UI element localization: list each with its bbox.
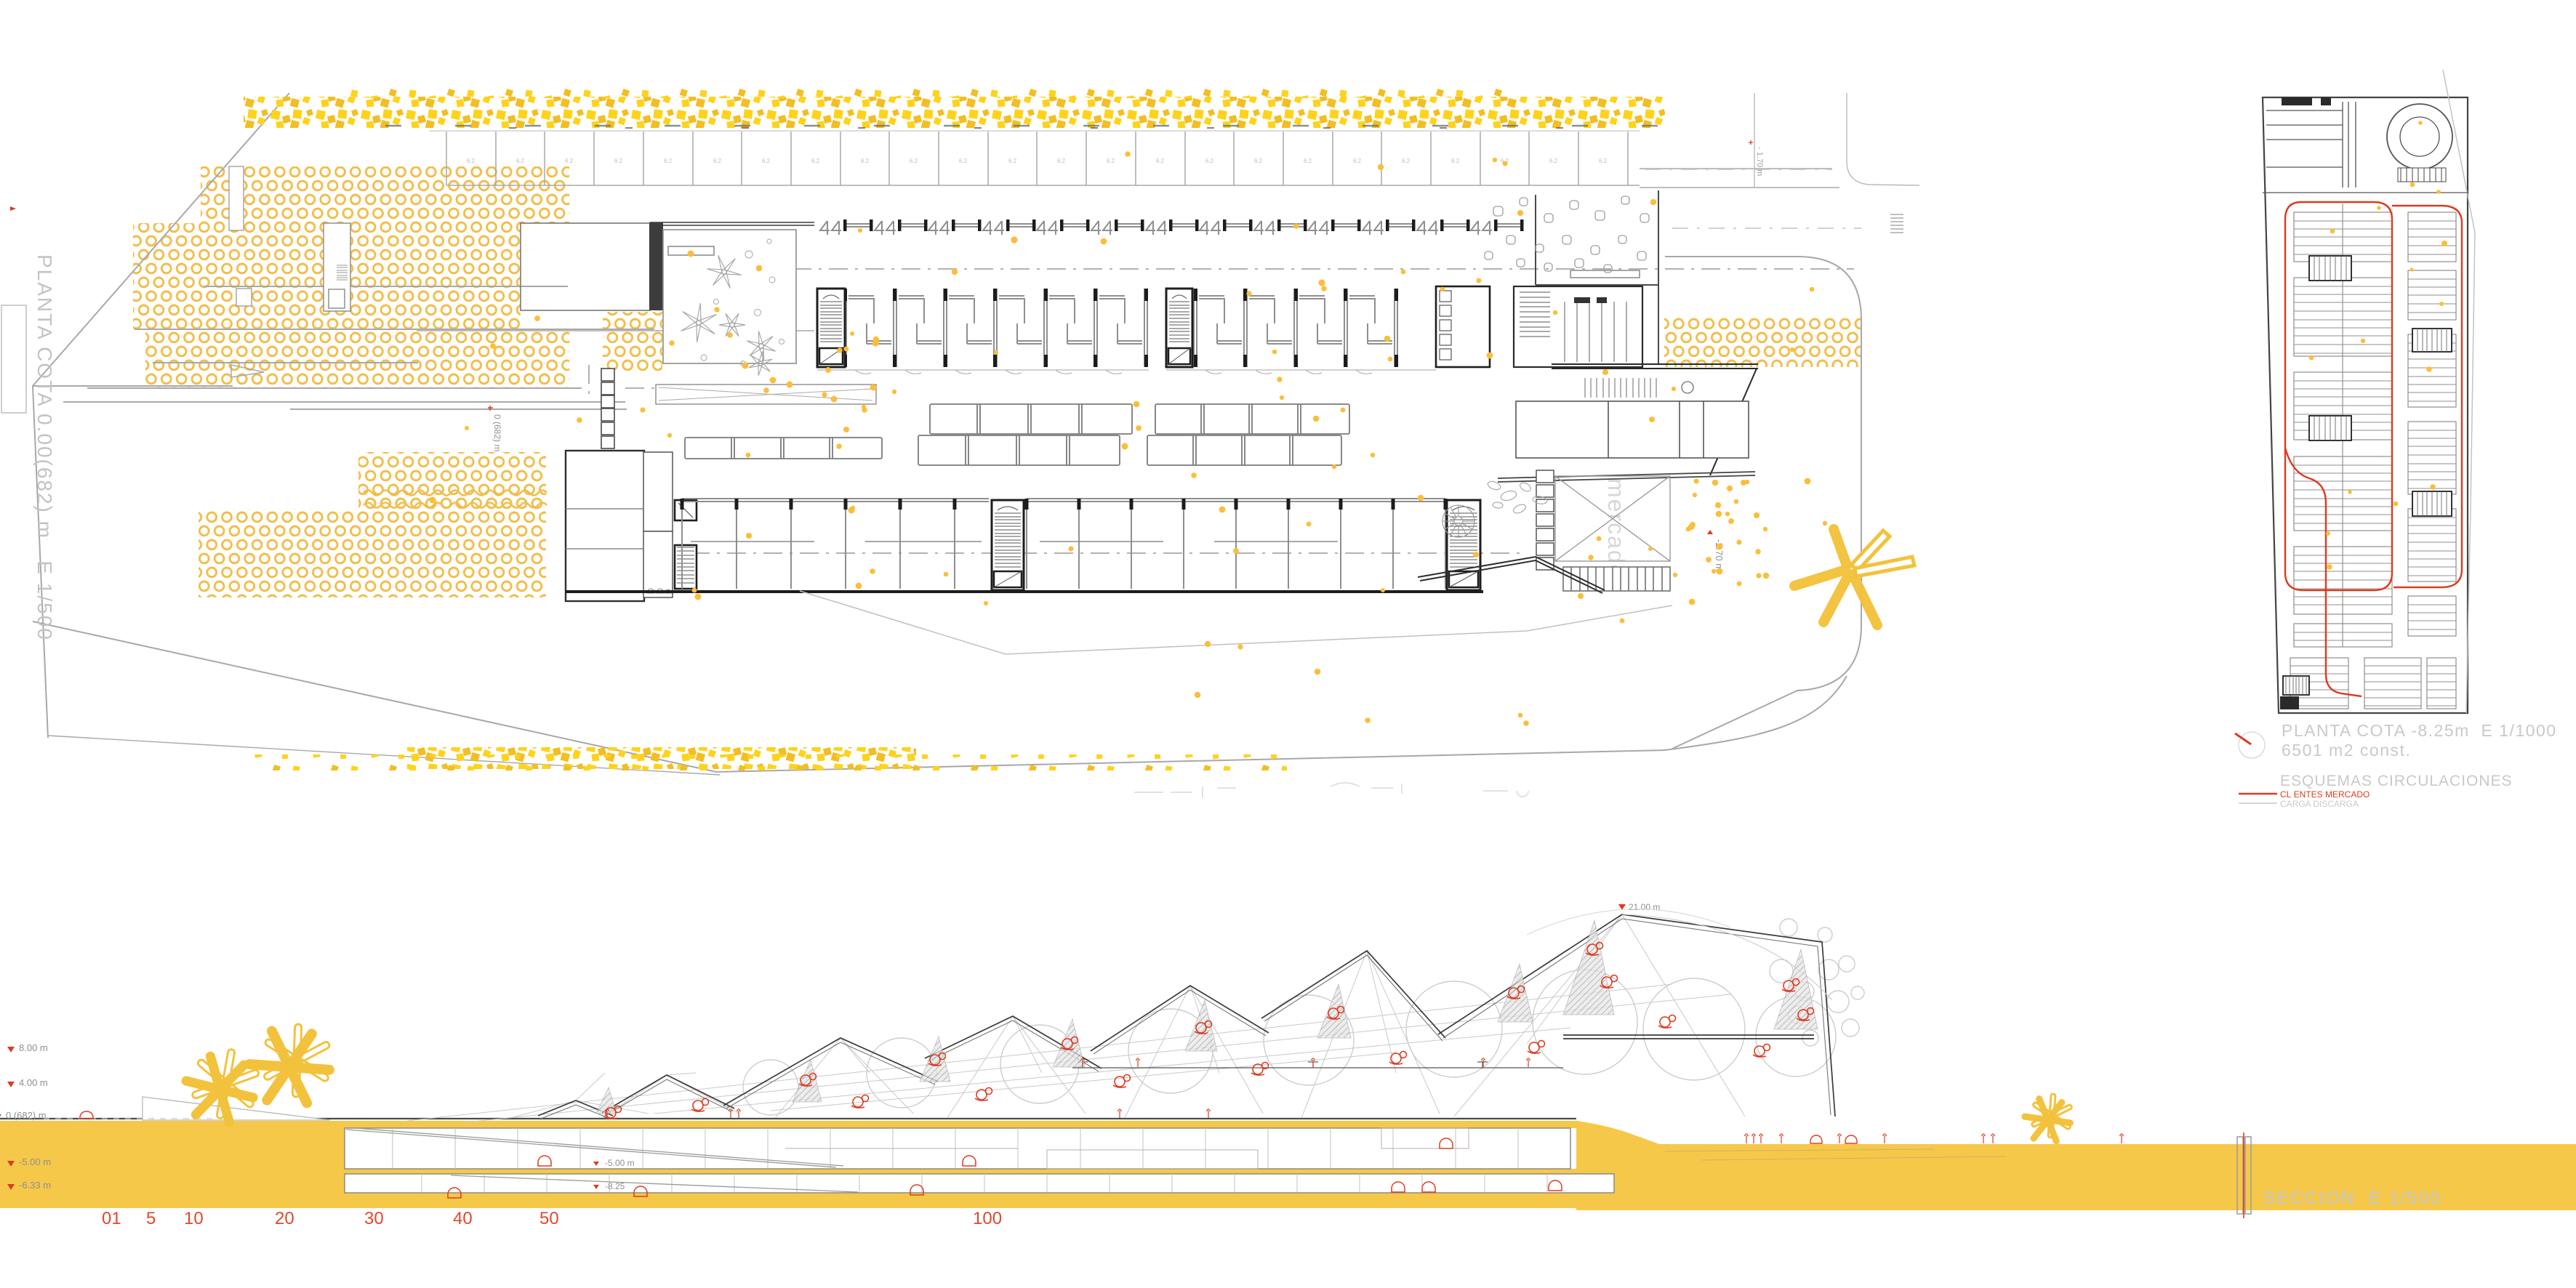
svg-text:20: 20	[275, 1209, 294, 1228]
svg-text:4.00 m: 4.00 m	[19, 1077, 48, 1088]
svg-text:8.00 m: 8.00 m	[19, 1042, 48, 1053]
svg-text:6.2: 6.2	[861, 158, 870, 164]
svg-text:6.2: 6.2	[467, 158, 476, 164]
svg-text:10: 10	[184, 1209, 204, 1228]
svg-text:0 (682) m: 0 (682) m	[6, 1110, 47, 1121]
svg-text:6.2: 6.2	[1402, 158, 1411, 164]
svg-text:6.2: 6.2	[1304, 158, 1312, 164]
svg-text:-5.00 m: -5.00 m	[605, 1158, 635, 1168]
svg-text:100: 100	[973, 1209, 1002, 1228]
svg-text:6.2: 6.2	[959, 158, 968, 164]
svg-text:-8.25: -8.25	[605, 1181, 625, 1191]
svg-text:21.00 m: 21.00 m	[1629, 902, 1660, 912]
svg-text:6.2: 6.2	[1549, 158, 1558, 164]
svg-text:6.2: 6.2	[1057, 158, 1066, 164]
svg-text:5: 5	[146, 1209, 156, 1228]
svg-text:6501 m2 const.: 6501 m2 const.	[2282, 741, 2411, 760]
svg-text:-5.00 m: -5.00 m	[19, 1156, 51, 1167]
svg-text:6.2: 6.2	[1254, 158, 1263, 164]
svg-text:01: 01	[102, 1209, 121, 1228]
svg-text:6.2: 6.2	[565, 158, 574, 164]
svg-text:CL ENTES MERCADO: CL ENTES MERCADO	[2280, 789, 2370, 800]
svg-text:6.2: 6.2	[1107, 158, 1115, 164]
svg-text:6.2: 6.2	[1008, 158, 1017, 164]
svg-text:CARGA DISCARGA: CARGA DISCARGA	[2280, 799, 2359, 809]
svg-text:6.2: 6.2	[516, 158, 525, 164]
svg-text:6.2: 6.2	[1451, 158, 1460, 164]
svg-text:-6.33 m: -6.33 m	[19, 1180, 51, 1191]
svg-text:50: 50	[539, 1209, 559, 1228]
svg-text:6.2: 6.2	[1599, 158, 1608, 164]
svg-text:6.2: 6.2	[910, 158, 918, 164]
svg-text:SECCION E 1/500: SECCION E 1/500	[2263, 1188, 2441, 1208]
svg-text:6.2: 6.2	[614, 158, 623, 164]
svg-text:ESQUEMAS CIRCULACIONES: ESQUEMAS CIRCULACIONES	[2280, 773, 2513, 789]
svg-text:6.2: 6.2	[762, 158, 771, 164]
svg-text:6.2: 6.2	[811, 158, 820, 164]
svg-text:6.2: 6.2	[1353, 158, 1362, 164]
svg-text:6.2: 6.2	[664, 158, 673, 164]
svg-text:6.2: 6.2	[1156, 158, 1165, 164]
svg-text:PLANTA COTA 0.00(682) m E 1/: PLANTA COTA 0.00(682) m E 1/500	[33, 254, 56, 641]
svg-text:40: 40	[453, 1209, 473, 1228]
svg-text:- 1.70 m: - 1.70 m	[1755, 147, 1764, 176]
svg-text:6.2: 6.2	[1205, 158, 1214, 164]
svg-text:0 (682) m: 0 (682) m	[492, 414, 502, 451]
svg-text:6.2: 6.2	[713, 158, 722, 164]
svg-text:PLANTA COTA -8.25m E 1/1000: PLANTA COTA -8.25m E 1/1000	[2282, 721, 2557, 740]
svg-text:30: 30	[364, 1209, 384, 1228]
